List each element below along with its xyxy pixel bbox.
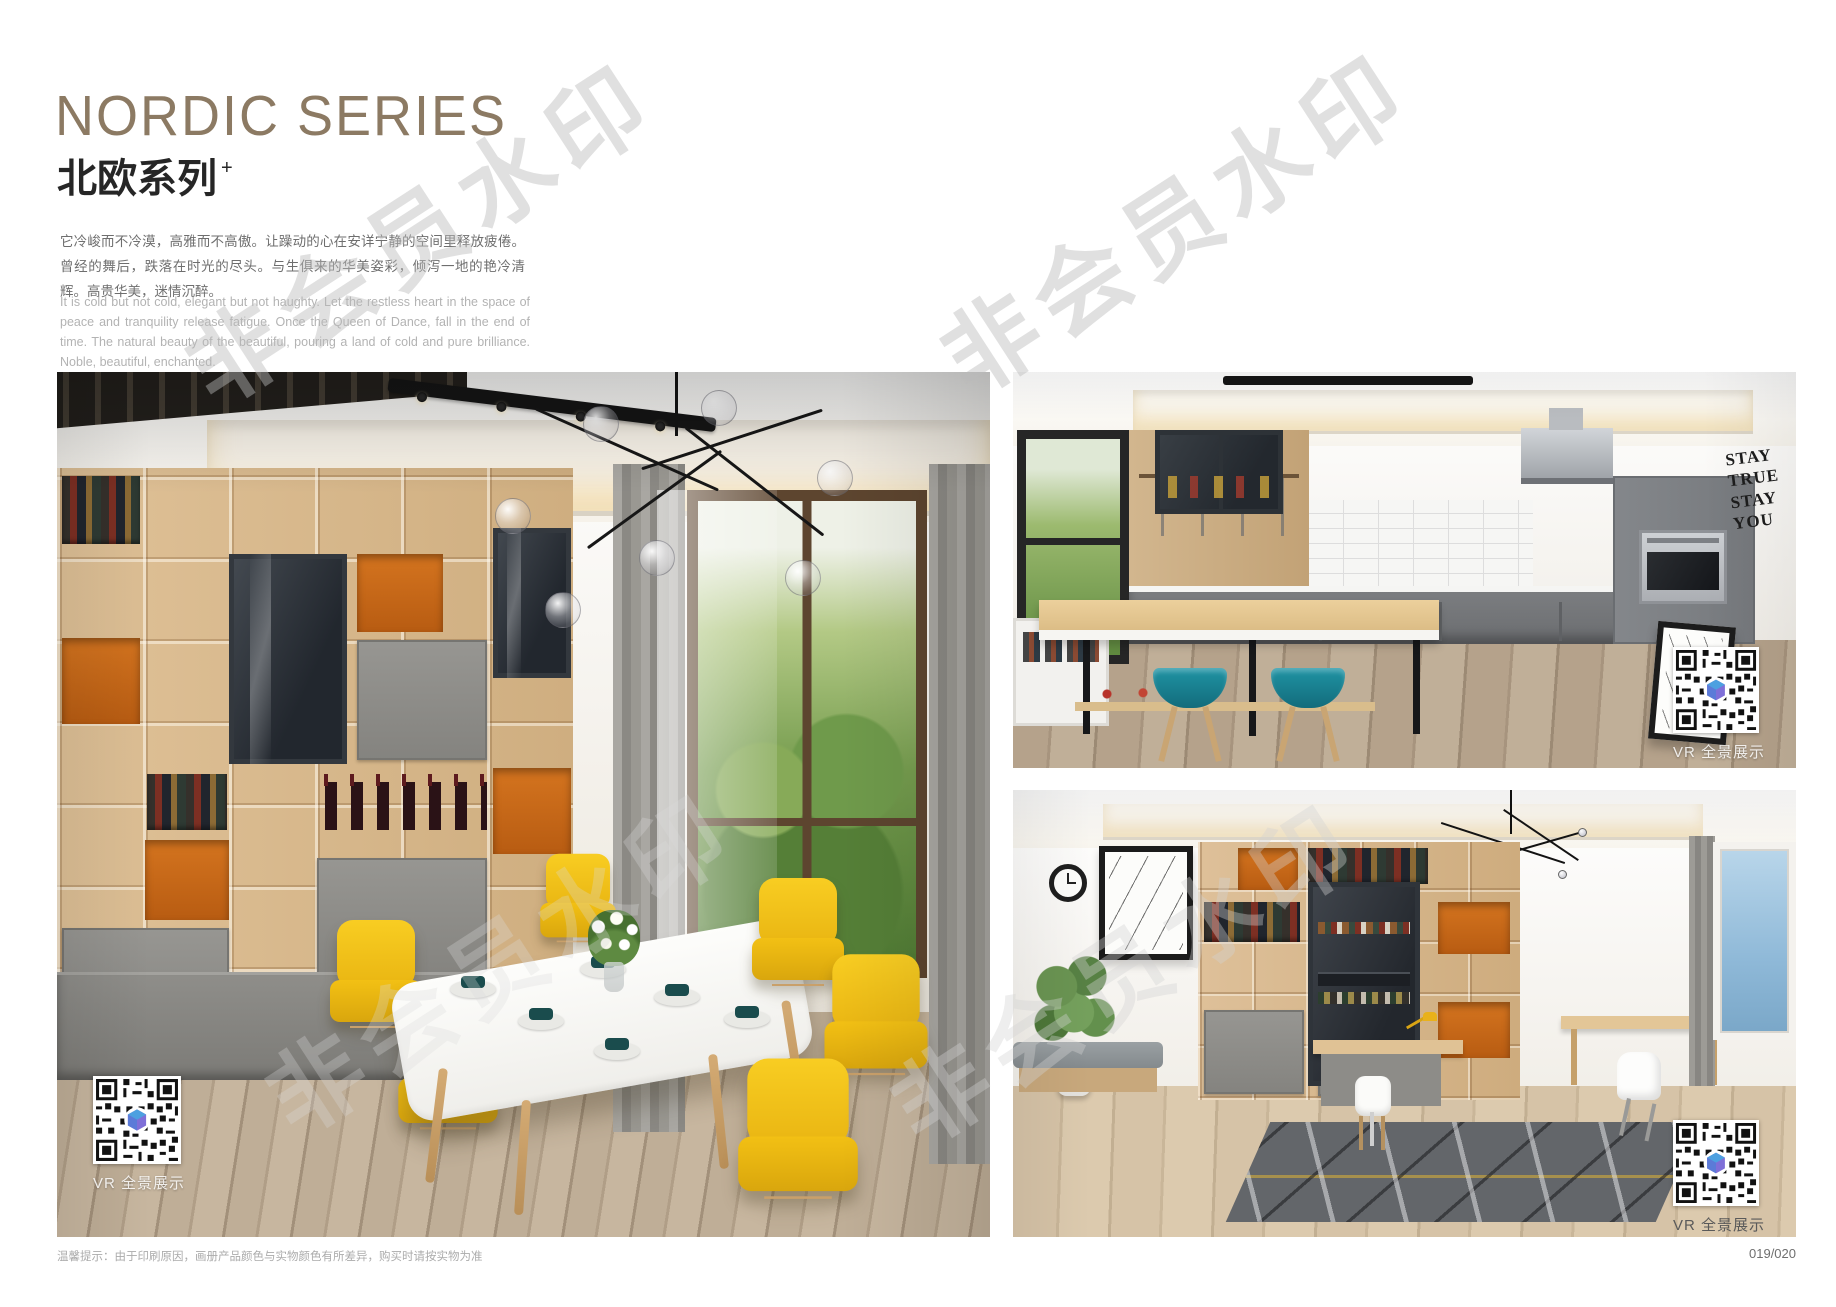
grey-cabinet-door [1204,1010,1304,1094]
qr-code-icon [1673,647,1759,733]
yellow-chair [738,1059,858,1228]
catalog-page: NORDIC SERIES 北欧系列+ 它冷峻而不冷漠，高雅而不高傲。让躁动的心… [0,0,1836,1307]
glass-globe [639,540,675,576]
books-shelf [1308,848,1428,884]
glass-display-cabinet [229,554,347,764]
chandelier-arm [685,426,825,536]
study-desk-left [1313,1040,1463,1054]
glass-globe [583,406,619,442]
series-title-cn: 北欧系列+ [57,146,233,204]
glass-globe [785,560,821,596]
built-in-oven [1639,530,1727,604]
vr-panorama-label: VR 全景展示 [93,1172,185,1193]
vr-panorama-label: VR 全景展示 [1673,1214,1765,1235]
pendant-bulb [1558,870,1567,879]
place-setting [450,980,496,998]
orange-niche [145,840,229,920]
series-title-cn-text: 北欧系列 [57,157,217,201]
orange-niche [357,554,443,632]
study-curtain [1689,836,1715,1086]
table-leg [514,1100,531,1215]
place-setting [654,988,700,1006]
glass-globe [817,460,853,496]
vr-qr-badge-dining: VR 全景展示 [93,1076,185,1193]
glass-globe [495,498,531,534]
island-under-shelf [1075,702,1375,711]
title-superscript: + [221,157,233,179]
photo-study-room: VR 全景展示 [1013,790,1796,1237]
place-setting [594,1042,640,1060]
island-leg [1413,634,1420,734]
white-shell-chair [1613,1052,1665,1138]
photo-kitchen: STAY TRUE STAY YOU VR 全景展示 [1013,372,1796,768]
chandelier-arm [535,407,719,491]
series-title-en: NORDIC SERIES [55,84,507,148]
abstract-art-frame [1099,846,1193,960]
island-leg [1083,634,1090,734]
place-setting [518,1012,564,1030]
wall-clock [1049,864,1087,902]
grey-cabinet-door [357,640,487,760]
books-shelf [1204,902,1300,942]
tile-backsplash [1309,500,1533,588]
orange-niche [62,638,140,724]
footer-disclaimer: 温馨提示：由于印刷原因，画册产品颜色与实物颜色有所差异，购买时请按实物为准 [57,1248,483,1264]
table-leg [708,1054,729,1169]
books-shelf [147,774,227,830]
curtain-right [929,464,990,1164]
place-setting [724,1010,770,1028]
description-english: It is cold but not cold, elegant but not… [60,292,530,372]
orange-niche [1438,902,1510,954]
vr-panorama-label: VR 全景展示 [1673,741,1765,762]
bar-counter [1039,600,1439,640]
kitchen-track-light [1223,376,1473,385]
watermark-text: 非会员水印 [911,15,1434,421]
range-hood [1521,428,1613,480]
qr-code-icon [93,1076,181,1164]
upper-glass-cabinet [1155,430,1283,514]
orange-niche [1238,848,1298,890]
wall-art-text: STAY TRUE STAY YOU [1724,439,1796,534]
glass-globe [701,390,737,426]
qr-code-icon [1673,1120,1759,1206]
kitchen-ceiling-recess [1133,390,1753,434]
vr-qr-badge-study: VR 全景展示 [1673,1120,1765,1235]
potted-plant [1031,950,1117,1054]
wine-bottle-shelf [315,774,487,830]
white-desk-chair [1351,1076,1395,1154]
dining-set [282,842,922,1237]
island-leg [1249,636,1256,736]
sputnik-chandelier [487,372,877,662]
window-bench [1013,1042,1163,1068]
photo-dining-room: VR 全景展示 [57,372,990,1237]
study-window [1713,842,1796,1040]
books-shelf [62,476,140,544]
page-number: 019/020 [1696,1246,1796,1261]
yellow-desk-lamp [1401,1012,1441,1042]
glass-globe [545,592,581,628]
pendant-bulb [1578,828,1587,837]
flower-vase [574,876,654,996]
vr-qr-badge-kitchen: VR 全景展示 [1673,647,1765,762]
